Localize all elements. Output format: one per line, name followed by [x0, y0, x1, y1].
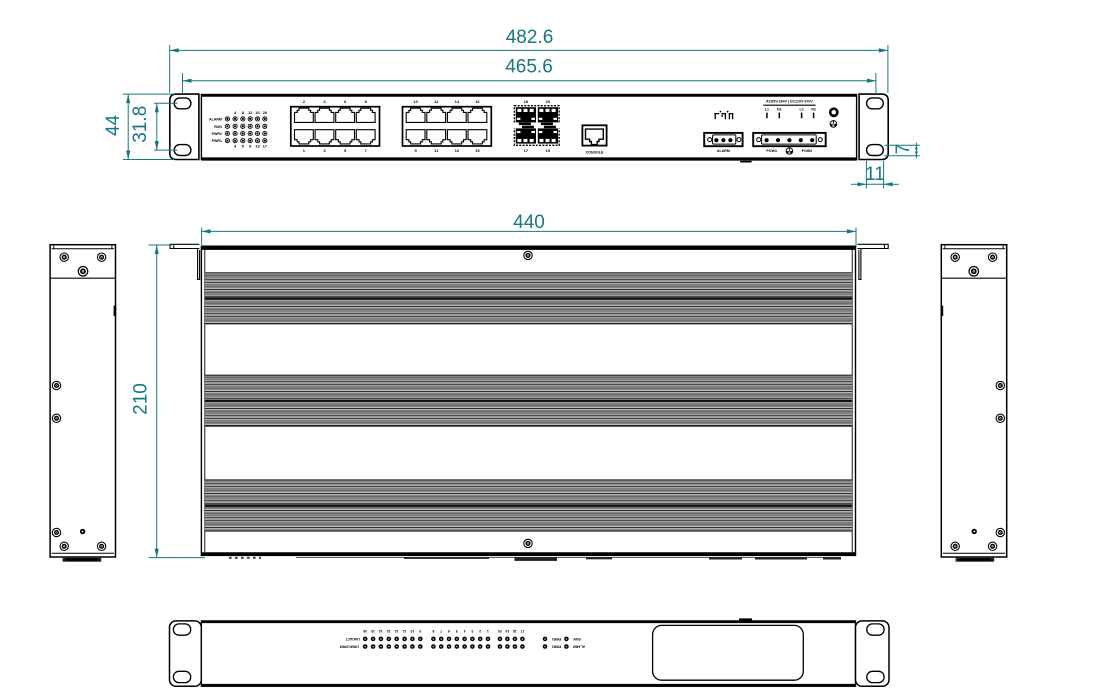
- svg-text:ALARM: ALARM: [209, 117, 222, 121]
- svg-text:ALARM: ALARM: [717, 149, 730, 153]
- svg-text:9: 9: [419, 629, 421, 633]
- svg-text:18: 18: [524, 99, 529, 104]
- svg-text:20: 20: [498, 629, 502, 633]
- svg-text:LNK/ACT: LNK/ACT: [345, 637, 359, 641]
- svg-text:RUN: RUN: [573, 637, 581, 641]
- svg-text:CONSOLE: CONSOLE: [586, 151, 604, 155]
- svg-text:7: 7: [893, 144, 914, 155]
- svg-text:15: 15: [371, 629, 375, 633]
- svg-text:8: 8: [432, 629, 434, 633]
- svg-text:1: 1: [487, 629, 489, 633]
- svg-text:3: 3: [471, 629, 473, 633]
- svg-text:12: 12: [434, 99, 439, 104]
- svg-text:L1: L1: [765, 108, 769, 112]
- svg-text:14: 14: [455, 99, 460, 104]
- svg-text:16: 16: [363, 629, 367, 633]
- svg-text:482.6: 482.6: [506, 27, 554, 48]
- svg-text:13: 13: [455, 148, 460, 153]
- svg-text:POW2: POW2: [802, 149, 813, 153]
- svg-text:14: 14: [379, 629, 383, 633]
- svg-text:465.6: 465.6: [505, 57, 553, 78]
- svg-text:44: 44: [103, 114, 124, 136]
- svg-text:PWR2: PWR2: [552, 644, 562, 648]
- svg-text:13: 13: [387, 629, 391, 633]
- svg-text:RUN: RUN: [214, 125, 222, 129]
- svg-text:7: 7: [440, 629, 442, 633]
- svg-text:16: 16: [255, 110, 260, 115]
- svg-text:12: 12: [395, 629, 399, 633]
- svg-text:L2: L2: [799, 108, 803, 112]
- svg-text:17: 17: [524, 148, 529, 153]
- svg-text:N2: N2: [811, 108, 816, 112]
- svg-text:POW1: POW1: [766, 149, 777, 153]
- svg-text:11: 11: [865, 164, 885, 185]
- svg-text:100M/1000M: 100M/1000M: [340, 644, 359, 648]
- svg-text:15: 15: [475, 148, 480, 153]
- svg-text:ALARM: ALARM: [573, 644, 585, 648]
- svg-text:20: 20: [263, 110, 268, 115]
- svg-text:31.8: 31.8: [130, 106, 151, 143]
- svg-text:10: 10: [413, 99, 418, 104]
- svg-text:PWR1: PWR1: [552, 637, 562, 641]
- svg-text:17: 17: [520, 629, 524, 633]
- svg-text:17: 17: [263, 144, 268, 149]
- svg-text:11: 11: [403, 629, 407, 633]
- svg-text:5: 5: [456, 629, 458, 633]
- svg-text:19: 19: [546, 148, 551, 153]
- svg-text:12: 12: [248, 110, 253, 115]
- svg-text:440: 440: [513, 212, 545, 233]
- svg-text:20: 20: [546, 99, 551, 104]
- svg-text:19: 19: [505, 629, 509, 633]
- svg-text:10: 10: [410, 629, 414, 633]
- svg-text:210: 210: [131, 383, 152, 415]
- svg-text:16: 16: [475, 99, 480, 104]
- svg-text:AC85V-264V | DC110V-370V: AC85V-264V | DC110V-370V: [766, 99, 813, 103]
- svg-text:6: 6: [448, 629, 450, 633]
- svg-text:PWR1: PWR1: [212, 139, 222, 143]
- svg-text:18: 18: [513, 629, 517, 633]
- svg-text:4: 4: [464, 629, 466, 633]
- svg-text:PWR2: PWR2: [212, 132, 222, 136]
- svg-text:2: 2: [479, 629, 481, 633]
- svg-text:N1: N1: [777, 108, 782, 112]
- svg-text:13: 13: [255, 144, 260, 149]
